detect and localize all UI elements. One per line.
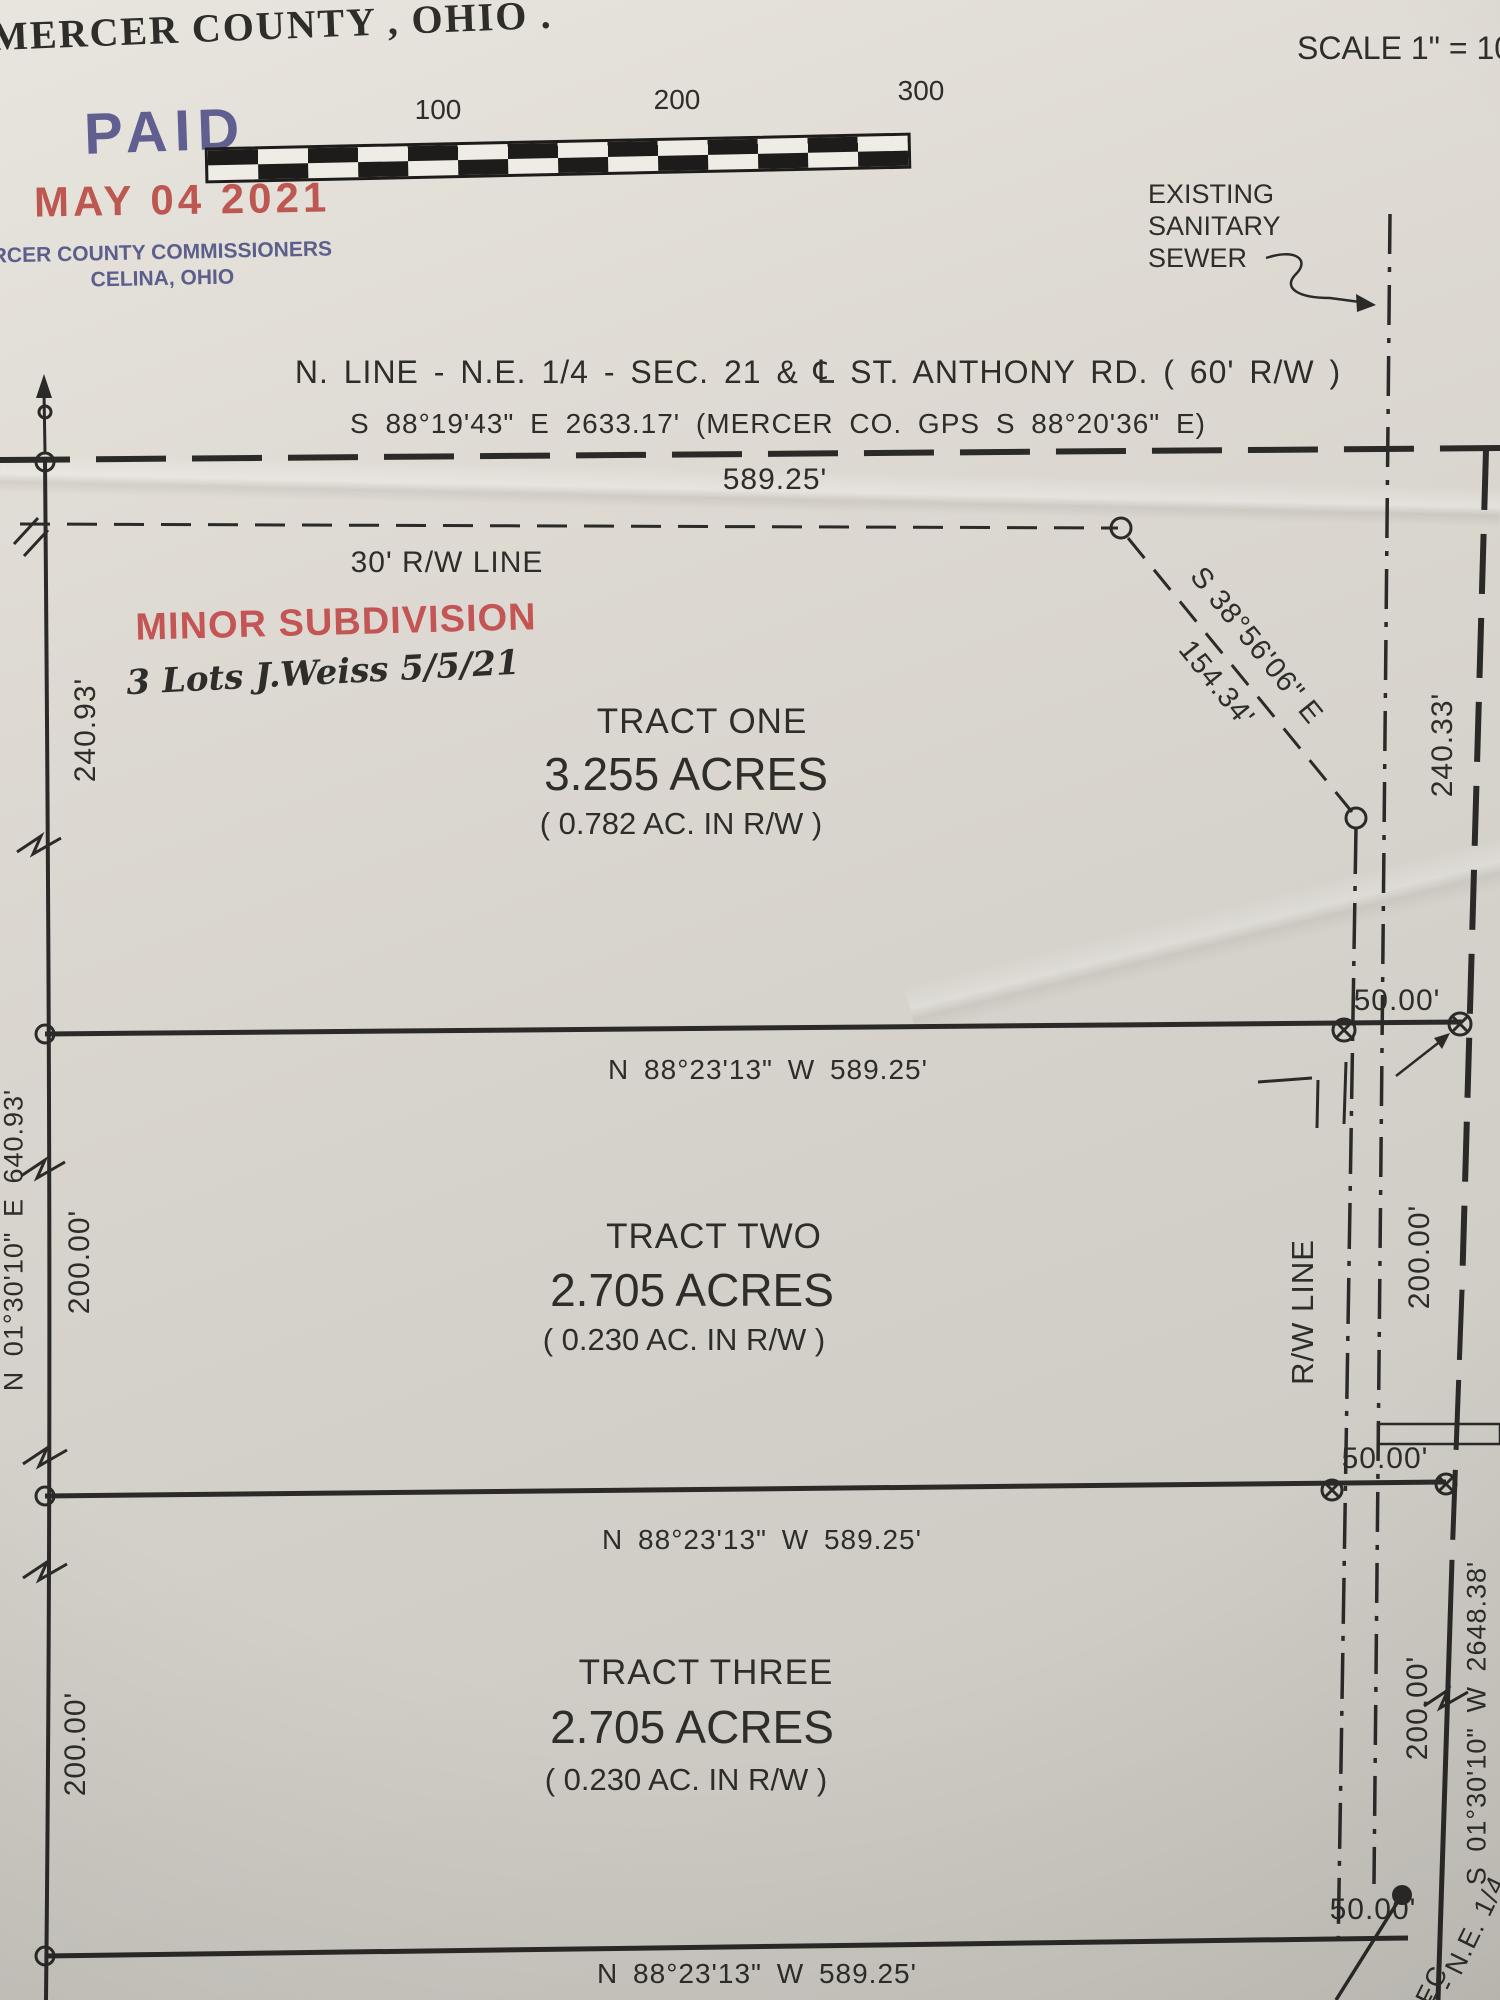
west-240-dim: 240.93' — [69, 678, 103, 783]
sanitary-sewer-line — [1374, 214, 1390, 1884]
east-line-lower — [1438, 1560, 1452, 2000]
tract2-name: TRACT TWO — [606, 1217, 822, 1257]
east-line-upper — [1462, 450, 1486, 1290]
east-200-dim-2: 200.00' — [1401, 1656, 1435, 1761]
east-200-dim-1: 200.00' — [1403, 1205, 1437, 1310]
tract-line2-bearing: N 88°23'13" W 589.25' — [602, 1524, 922, 1556]
east-240-dim: 240.33' — [1426, 693, 1460, 798]
tract-line-3 — [45, 1938, 1408, 1956]
north-section-line — [0, 448, 1500, 460]
rw30-label: 30' R/W LINE — [351, 546, 544, 580]
pointer-arrow-line — [1396, 1040, 1442, 1076]
corner-arrow-line — [44, 392, 45, 452]
witness-tick — [1317, 1080, 1318, 1128]
west-boundary-line — [45, 460, 49, 2000]
west-200-dim-2: 200.00' — [59, 1692, 93, 1797]
line-break-icon — [17, 836, 61, 854]
survey-box-symbol — [1378, 1424, 1500, 1444]
sewer-leader-arrowhead-icon — [1356, 294, 1376, 312]
tract2-rw: ( 0.230 AC. IN R/W ) — [543, 1322, 826, 1358]
witness-tick — [1258, 1078, 1312, 1082]
tract-line1-bearing: N 88°23'13" W 589.25' — [608, 1054, 928, 1086]
tract3-acres: 2.705 ACRES — [550, 1700, 834, 1754]
west-200-dim-1: 200.00' — [63, 1210, 97, 1315]
tract3-rw: ( 0.230 AC. IN R/W ) — [545, 1762, 828, 1798]
tract-line3-bearing: N 88°23'13" W 589.25' — [597, 1958, 917, 1990]
plat-document-page: MERCER COUNTY , OHIO . SCALE 1" = 10 PAI… — [0, 0, 1500, 2000]
fifty-dim-1: 50.00' — [1354, 984, 1441, 1018]
tract-line-1 — [45, 1022, 1462, 1034]
rw-30-line — [20, 524, 1118, 528]
fifty-dim-2: 50.00' — [1342, 1442, 1429, 1476]
up-arrow-icon — [36, 374, 52, 398]
rw-bend-circle — [1346, 808, 1366, 828]
rw-diagonal-line — [1128, 538, 1352, 812]
sewer-leader-squiggle — [1266, 254, 1360, 302]
west-line-bearing: N 01°30'10" E 640.93' — [0, 1089, 30, 1391]
east-line-bearing: S 01°30'10" W 2648.38' — [1462, 1561, 1493, 1885]
witness-tick — [1344, 1062, 1346, 1124]
tract-line-2 — [45, 1482, 1446, 1496]
tract1-name: TRACT ONE — [597, 702, 808, 742]
tract1-rw: ( 0.782 AC. IN R/W ) — [540, 806, 823, 842]
frontage-distance: 589.25' — [723, 463, 828, 497]
rw-line-label: R/W LINE — [1285, 1239, 1321, 1385]
line-break-icon — [23, 1448, 67, 1466]
tract1-acres: 3.255 ACRES — [544, 747, 828, 801]
tract2-acres: 2.705 ACRES — [550, 1263, 834, 1317]
line-break-icon — [23, 1562, 67, 1580]
fifty-dim-3: 50.00' — [1330, 1893, 1417, 1927]
pointer-arrowhead-icon — [1434, 1033, 1450, 1049]
tract3-name: TRACT THREE — [579, 1653, 834, 1693]
